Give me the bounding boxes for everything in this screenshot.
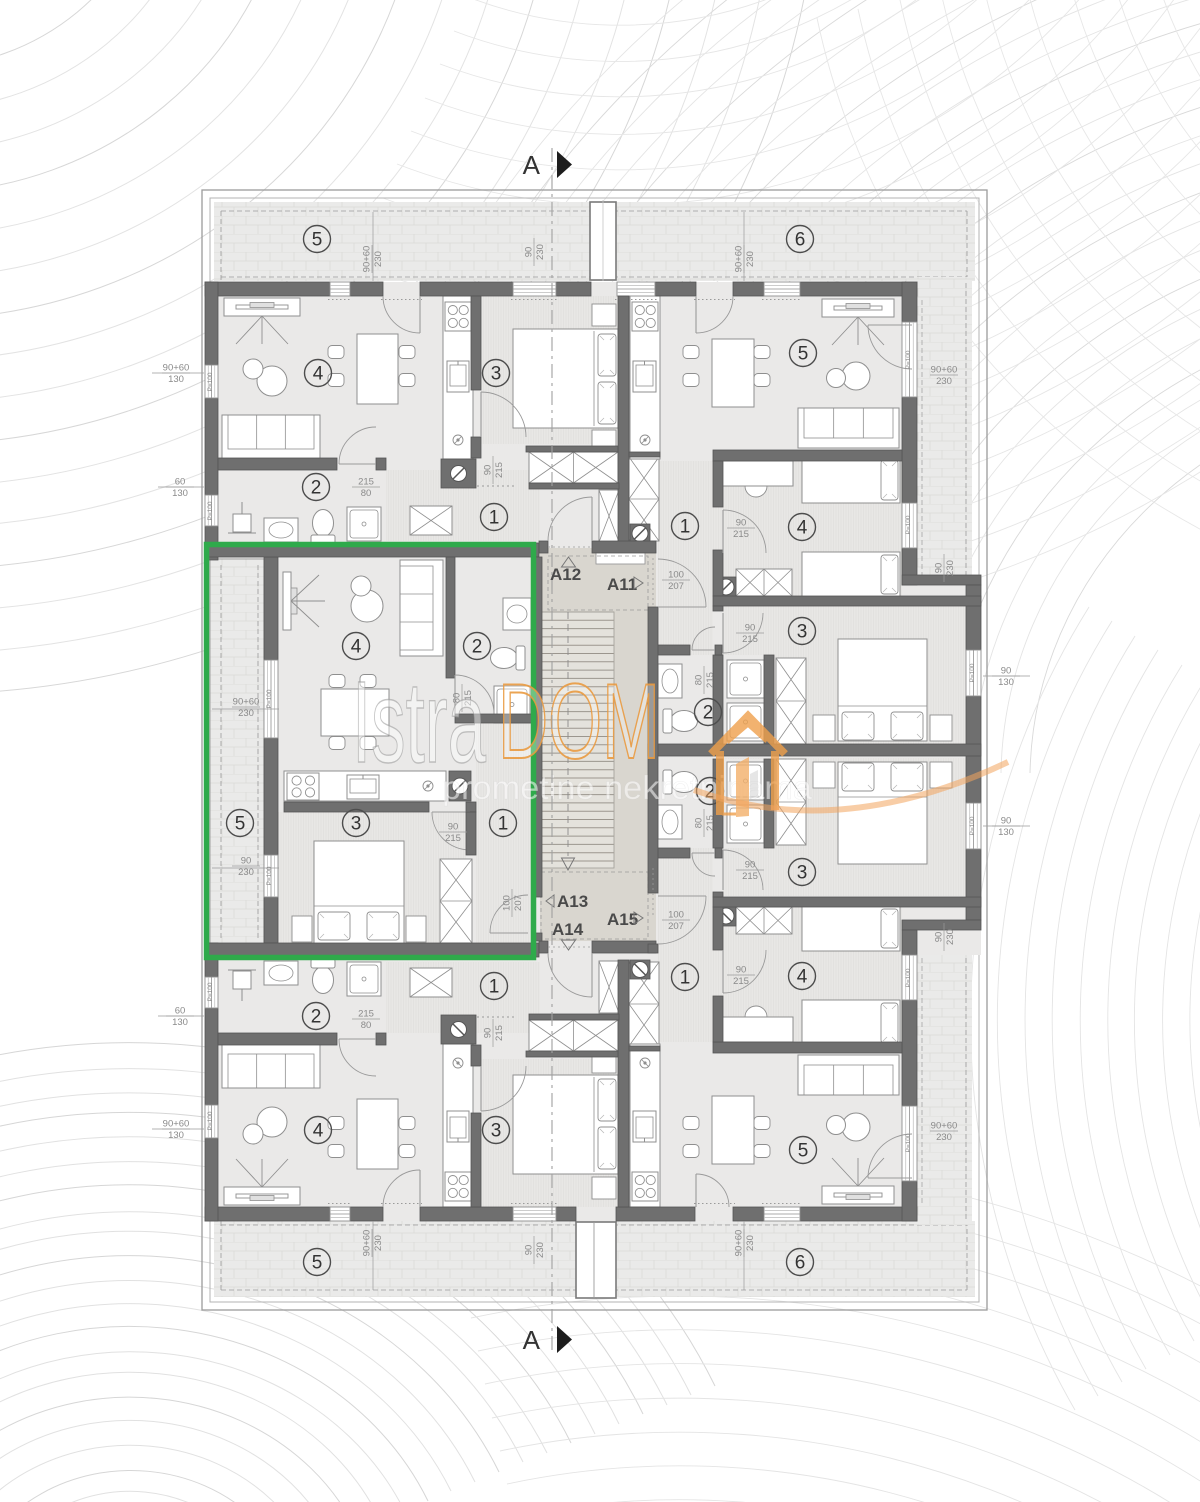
svg-text:90: 90 bbox=[241, 856, 252, 867]
svg-text:230: 230 bbox=[535, 244, 546, 260]
svg-text:90: 90 bbox=[934, 932, 945, 943]
svg-text:90: 90 bbox=[524, 247, 535, 258]
svg-text:80: 80 bbox=[361, 488, 372, 499]
svg-text:P=100: P=100 bbox=[207, 372, 214, 391]
svg-text:207: 207 bbox=[668, 921, 684, 932]
svg-text:90: 90 bbox=[736, 965, 747, 976]
svg-text:2: 2 bbox=[311, 1007, 322, 1028]
svg-text:100: 100 bbox=[502, 895, 513, 911]
svg-text:90+60: 90+60 bbox=[362, 1230, 373, 1257]
svg-text:A11: A11 bbox=[607, 575, 637, 594]
svg-text:130: 130 bbox=[998, 827, 1014, 838]
svg-text:90: 90 bbox=[483, 1028, 494, 1039]
svg-text:2: 2 bbox=[703, 703, 714, 724]
svg-text:130: 130 bbox=[998, 677, 1014, 688]
svg-text:90+60: 90+60 bbox=[233, 697, 260, 708]
svg-text:5: 5 bbox=[235, 814, 246, 835]
svg-text:A14: A14 bbox=[552, 920, 584, 939]
svg-text:90: 90 bbox=[1001, 816, 1012, 827]
svg-text:80: 80 bbox=[361, 1020, 372, 1031]
svg-text:230: 230 bbox=[238, 708, 254, 719]
svg-text:A12: A12 bbox=[550, 565, 581, 584]
svg-text:P=100: P=100 bbox=[905, 968, 912, 987]
svg-text:5: 5 bbox=[312, 1253, 323, 1274]
svg-text:1: 1 bbox=[680, 968, 691, 989]
svg-text:230: 230 bbox=[945, 560, 956, 576]
svg-text:215: 215 bbox=[705, 672, 716, 688]
svg-text:60: 60 bbox=[175, 1006, 186, 1017]
svg-text:130: 130 bbox=[172, 1017, 188, 1028]
svg-text:4: 4 bbox=[351, 637, 362, 658]
svg-text:4: 4 bbox=[313, 1121, 324, 1142]
svg-text:6: 6 bbox=[795, 1253, 806, 1274]
svg-text:3: 3 bbox=[491, 364, 502, 385]
svg-text:1: 1 bbox=[498, 814, 509, 835]
svg-text:P=100: P=100 bbox=[207, 1111, 214, 1130]
svg-text:90: 90 bbox=[934, 563, 945, 574]
svg-text:230: 230 bbox=[535, 1242, 546, 1258]
svg-text:130: 130 bbox=[172, 488, 188, 499]
svg-text:P=100: P=100 bbox=[207, 982, 214, 1001]
svg-text:90+60: 90+60 bbox=[734, 1230, 745, 1257]
svg-text:DOM: DOM bbox=[498, 661, 660, 781]
svg-text:90+60: 90+60 bbox=[163, 363, 190, 374]
svg-text:1: 1 bbox=[489, 508, 500, 529]
svg-text:215: 215 bbox=[742, 634, 758, 645]
svg-text:215: 215 bbox=[494, 462, 505, 478]
svg-text:230: 230 bbox=[745, 1235, 756, 1251]
svg-text:100: 100 bbox=[668, 910, 684, 921]
svg-text:215: 215 bbox=[742, 871, 758, 882]
svg-text:215: 215 bbox=[494, 1025, 505, 1041]
svg-text:90+60: 90+60 bbox=[362, 246, 373, 273]
svg-text:90+60: 90+60 bbox=[931, 1121, 958, 1132]
svg-text:P=100: P=100 bbox=[266, 866, 273, 885]
svg-text:A: A bbox=[523, 150, 541, 180]
svg-text:90+60: 90+60 bbox=[734, 246, 745, 273]
svg-text:90+60: 90+60 bbox=[163, 1119, 190, 1130]
svg-text:215: 215 bbox=[705, 815, 716, 831]
svg-text:215: 215 bbox=[445, 833, 461, 844]
svg-text:90: 90 bbox=[745, 860, 756, 871]
svg-text:1: 1 bbox=[489, 977, 500, 998]
svg-text:130: 130 bbox=[168, 374, 184, 385]
svg-text:230: 230 bbox=[373, 251, 384, 267]
svg-text:215: 215 bbox=[358, 477, 374, 488]
svg-text:90+60: 90+60 bbox=[931, 365, 958, 376]
svg-text:215: 215 bbox=[733, 976, 749, 987]
svg-text:2: 2 bbox=[472, 637, 483, 658]
svg-text:215: 215 bbox=[358, 1009, 374, 1020]
svg-text:90: 90 bbox=[745, 623, 756, 634]
svg-text:4: 4 bbox=[797, 967, 808, 988]
svg-text:5: 5 bbox=[798, 1141, 809, 1162]
svg-text:P=100: P=100 bbox=[905, 350, 912, 369]
svg-text:207: 207 bbox=[513, 895, 524, 911]
svg-text:215: 215 bbox=[733, 529, 749, 540]
svg-text:3: 3 bbox=[491, 1121, 502, 1142]
svg-text:6: 6 bbox=[795, 230, 806, 251]
svg-text:4: 4 bbox=[797, 518, 808, 539]
svg-text:A: A bbox=[523, 1325, 541, 1355]
svg-text:80: 80 bbox=[694, 675, 705, 686]
svg-text:100: 100 bbox=[668, 570, 684, 581]
svg-text:230: 230 bbox=[936, 376, 952, 387]
svg-text:5: 5 bbox=[312, 230, 323, 251]
svg-text:P=100: P=100 bbox=[905, 515, 912, 534]
svg-text:1: 1 bbox=[680, 517, 691, 538]
svg-text:P=100: P=100 bbox=[905, 1133, 912, 1152]
svg-text:A13: A13 bbox=[557, 892, 588, 911]
svg-text:Istra: Istra bbox=[352, 657, 486, 787]
svg-text:90: 90 bbox=[736, 518, 747, 529]
svg-text:60: 60 bbox=[175, 477, 186, 488]
svg-text:P=100: P=100 bbox=[969, 816, 976, 835]
svg-text:230: 230 bbox=[936, 1132, 952, 1143]
svg-text:230: 230 bbox=[745, 251, 756, 267]
svg-text:90: 90 bbox=[524, 1245, 535, 1256]
svg-text:2: 2 bbox=[311, 478, 322, 499]
svg-text:90: 90 bbox=[483, 465, 494, 476]
svg-text:230: 230 bbox=[945, 929, 956, 945]
svg-text:P=100: P=100 bbox=[969, 663, 976, 682]
svg-text:5: 5 bbox=[798, 344, 809, 365]
svg-text:230: 230 bbox=[373, 1235, 384, 1251]
svg-text:3: 3 bbox=[351, 814, 362, 835]
svg-text:207: 207 bbox=[668, 581, 684, 592]
svg-text:P=100: P=100 bbox=[207, 501, 214, 520]
svg-text:230: 230 bbox=[238, 867, 254, 878]
svg-text:80: 80 bbox=[694, 818, 705, 829]
svg-text:90: 90 bbox=[1001, 666, 1012, 677]
svg-text:3: 3 bbox=[797, 622, 808, 643]
svg-text:P=100: P=100 bbox=[266, 689, 273, 708]
svg-text:130: 130 bbox=[168, 1130, 184, 1141]
svg-text:4: 4 bbox=[313, 364, 324, 385]
svg-text:90: 90 bbox=[448, 822, 459, 833]
svg-text:3: 3 bbox=[797, 863, 808, 884]
